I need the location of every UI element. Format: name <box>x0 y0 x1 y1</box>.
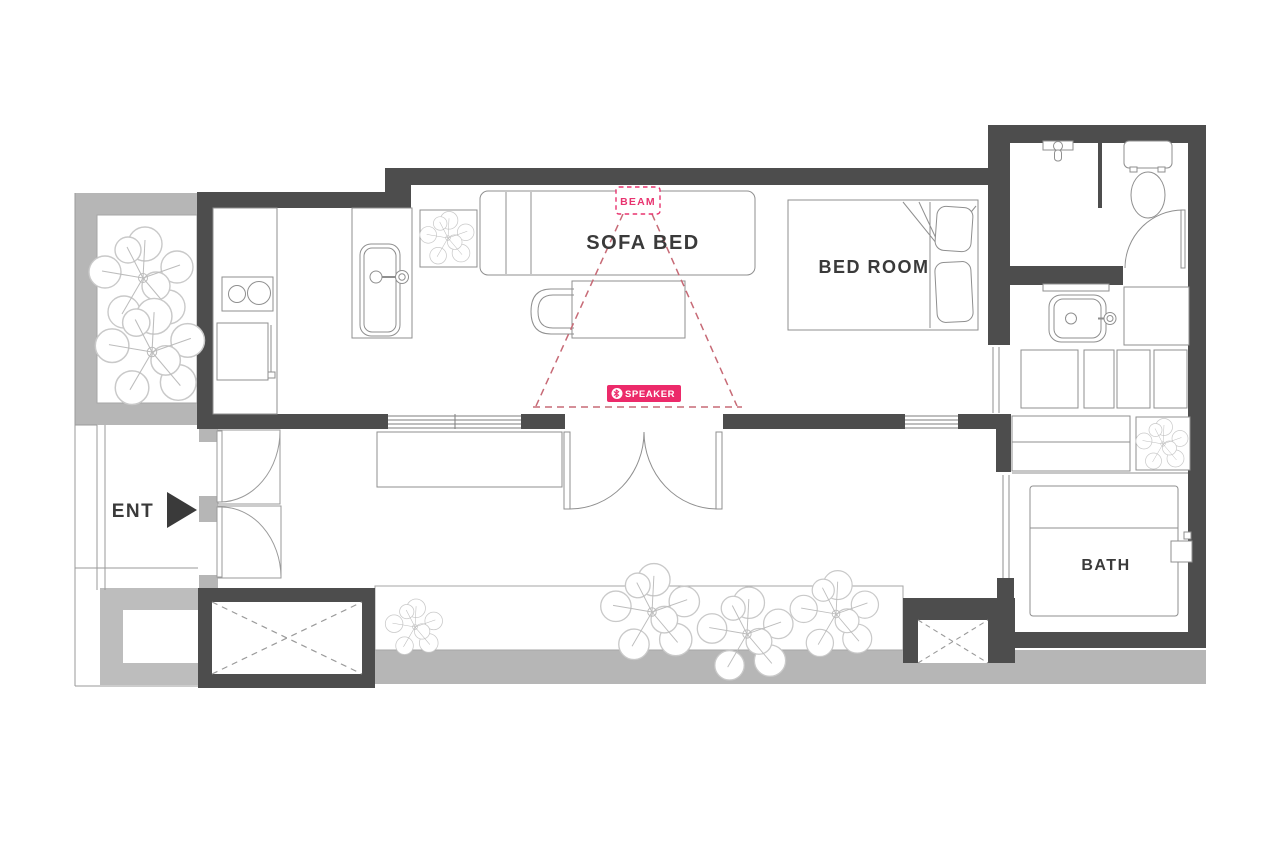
wall-faucet-icon <box>1043 141 1073 161</box>
shaft-left <box>198 588 375 688</box>
laundry-counter <box>1012 416 1130 471</box>
toilet-door <box>1125 210 1185 268</box>
terrace-deck <box>377 432 562 487</box>
wall-bedroom-right <box>988 125 1010 345</box>
speaker-label: SPEAKER <box>625 389 675 400</box>
wall-left <box>197 192 213 429</box>
wall-toilet-bottom <box>1010 266 1123 285</box>
chair <box>531 289 574 334</box>
wall-top-right <box>397 168 990 185</box>
balcony-edge-strip <box>375 650 1206 684</box>
toilet-room <box>1043 141 1185 268</box>
bed-room-label: BED ROOM <box>819 257 930 277</box>
entry-door-frame-bottom <box>218 506 281 578</box>
wall-top-left <box>197 192 397 208</box>
fridge <box>217 323 275 380</box>
pillow <box>934 261 973 323</box>
entry-door-leaf <box>217 431 222 502</box>
wall-bottom-3 <box>723 414 905 429</box>
entry-jamb-bottom <box>199 575 218 588</box>
bath-control-small <box>1184 532 1191 539</box>
french-door-leaf <box>716 432 722 509</box>
entry-jamb-top <box>199 429 218 442</box>
french-door-leaf <box>564 432 570 509</box>
bathtub-icon <box>1030 486 1178 616</box>
wall-toilet-top <box>988 125 1206 143</box>
cabinet <box>1124 287 1189 345</box>
pillow <box>935 206 974 252</box>
cabinet <box>1084 350 1114 408</box>
cabinet <box>1117 350 1150 408</box>
shaft-right-left <box>903 620 918 663</box>
vanity-shelf <box>1043 284 1109 291</box>
entrance <box>167 430 281 578</box>
entry-jamb-mid <box>199 496 218 522</box>
kitchen <box>213 208 477 414</box>
speaker-badge: SPEAKER <box>607 385 681 402</box>
window-2 <box>905 414 958 429</box>
sliding-door <box>993 347 999 413</box>
entry-door-leaf <box>217 507 222 577</box>
wall-right <box>1188 125 1206 648</box>
beam-label: BEAM <box>620 196 656 208</box>
terrace-doors <box>377 432 722 509</box>
table <box>572 281 685 338</box>
toilet-icon <box>1124 141 1172 218</box>
wall-bottom-1 <box>197 414 388 429</box>
washroom-sink-icon <box>1049 295 1116 342</box>
bath-door <box>1003 475 1009 578</box>
sofa-bed-label: SOFA BED <box>586 232 700 254</box>
wall-washroom-left <box>996 414 1011 472</box>
wall-bottom-2 <box>521 414 565 429</box>
entrance-label: ENT <box>112 501 155 522</box>
shaft-right-right <box>988 598 1015 663</box>
bath-control <box>1171 541 1192 562</box>
floor-plan-svg: BEAM SPEAKER SOFA BED BED ROOM BATH ENT <box>0 0 1280 852</box>
floor-plan-canvas: BEAM SPEAKER SOFA BED BED ROOM BATH ENT <box>0 0 1280 852</box>
window-1 <box>388 414 521 429</box>
bath-label: BATH <box>1081 557 1130 574</box>
cabinet <box>1021 350 1078 408</box>
stove-icon <box>222 277 273 311</box>
wall-bath-bottom <box>1010 632 1206 648</box>
cabinet <box>1154 350 1187 408</box>
lower-left-notch <box>123 610 198 663</box>
shaft-right <box>903 598 1015 663</box>
entrance-arrow-icon <box>167 492 197 528</box>
bathroom <box>1012 473 1192 616</box>
